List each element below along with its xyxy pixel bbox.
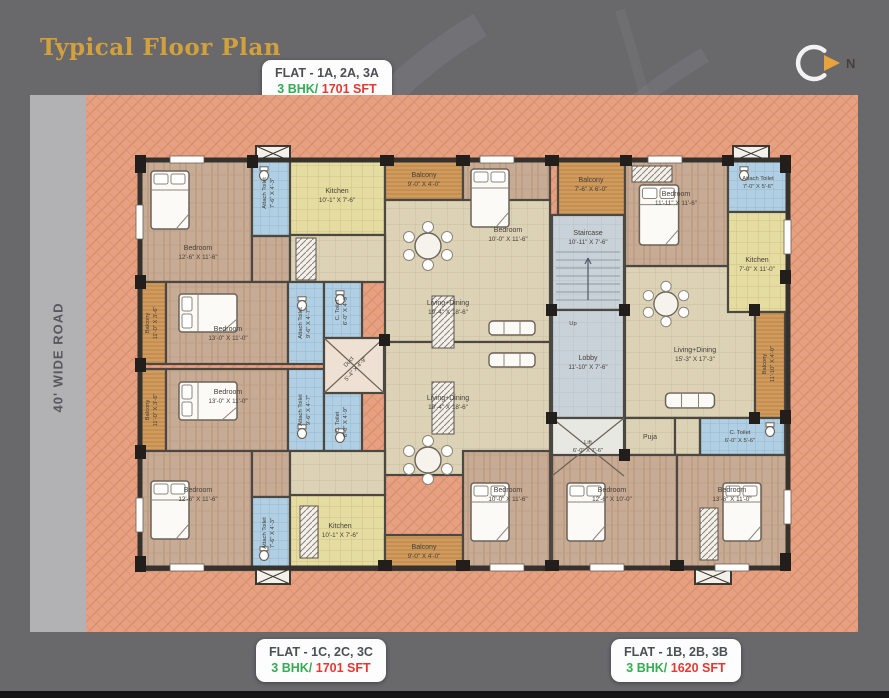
room-dims: 12'-6" X 11'-6": [178, 496, 217, 503]
room-label: Living+Dining: [427, 300, 469, 307]
room-dims: 10'-1" X 7'-6": [319, 197, 355, 204]
room-dims: 7'-6" X 4'-3": [270, 518, 276, 548]
room-label: Balcony: [145, 400, 151, 421]
rooms-layer: [140, 160, 788, 570]
room-label: Bedroom: [184, 245, 213, 252]
room-dims: 10'-0" X 11'-6": [488, 236, 527, 243]
room-dims: 12'-6" X 11'-6": [178, 254, 217, 261]
room-label: Kitchen: [745, 257, 768, 264]
room-dims: 6'-0" X 4'-9": [343, 407, 349, 437]
floor-plan: Bedroom 12'-6" X 11'-6" Attach Toilet 7'…: [86, 95, 858, 632]
room-label: Balcony: [412, 544, 437, 551]
room-label: Bedroom: [494, 487, 523, 494]
road-strip: 40' WIDE ROAD: [30, 95, 87, 632]
room-label: C. Toilet: [335, 299, 341, 320]
room-label: Kitchen: [325, 188, 348, 195]
room-dims: 9'-6" X 4'-7": [306, 395, 312, 425]
room-dims: 6'-0" X 5'-6": [725, 438, 755, 444]
room-dims: 7'-0" X 5'-6": [743, 184, 773, 190]
room-label: Bedroom: [214, 326, 243, 333]
room-label: Bedroom: [184, 487, 213, 494]
north-label: N: [846, 56, 855, 71]
room-dims: 13'-6" X 11'-0": [712, 496, 751, 503]
room-label: Bedroom: [718, 487, 747, 494]
room-label: Living+Dining: [427, 395, 469, 402]
room-label: Living+Dining: [674, 347, 716, 354]
room-dims: 10'-11" X 7'-6": [568, 239, 607, 246]
room-label: Kitchen: [328, 523, 351, 530]
north-indicator: N: [788, 38, 862, 92]
room-label: Staircase: [573, 230, 602, 237]
room-label: Bedroom: [662, 191, 691, 198]
sofa-icon: [489, 321, 535, 335]
flat-c-bhk: 3 BHK/: [271, 661, 312, 675]
room-dims: 19'-4" X 18'-6": [428, 404, 468, 411]
room-label: Balcony: [145, 313, 151, 334]
room-label: Bedroom: [214, 389, 243, 396]
room-dims: 7'-6" X 6'-0": [575, 186, 608, 193]
flat-b-title: FLAT - 1B, 2B, 3B: [624, 644, 728, 660]
room-dims: 10'-0" X 11'-6": [488, 496, 527, 503]
bed-icon: [151, 171, 189, 229]
room-dims: 19'-4" X 18'-6": [428, 309, 468, 316]
road-label: 40' WIDE ROAD: [51, 287, 66, 429]
room-label: Balcony: [762, 354, 768, 375]
room-dims: 7'-6" X 4'-3": [270, 178, 276, 208]
room-label: Attach Toilet: [298, 394, 304, 426]
toilet-wc-icon: [298, 425, 307, 439]
room-dims: 11'-0" X 3'-6": [153, 394, 159, 427]
room-label: Lobby: [578, 355, 598, 362]
room-dims: 13'-0" X 11'-0": [208, 335, 247, 342]
room-dims: 7'-0" X 11'-0": [739, 266, 775, 273]
room-dims: 15'-3" X 17'-3": [675, 356, 715, 363]
bottom-edge-bar: [0, 691, 889, 698]
flat-c-title: FLAT - 1C, 2C, 3C: [269, 644, 373, 660]
room-label: Balcony: [579, 177, 604, 184]
page-title: Typical Floor Plan: [40, 34, 281, 61]
room-label: Puja: [643, 434, 657, 441]
sofa-icon: [489, 353, 535, 367]
flat-badge-b: FLAT - 1B, 2B, 3B 3 BHK/ 1620 SFT: [611, 639, 741, 682]
room-dims: 9'-0" X 4'-0": [408, 553, 441, 560]
room-label: Attach Toilet: [262, 517, 268, 549]
room-dims: 6'-0" X 7'-6": [573, 448, 603, 454]
bed-icon: [471, 169, 509, 227]
room-label: Attach Toilet: [298, 307, 304, 339]
room-label: C. Toilet: [335, 411, 341, 432]
room-dims: 11'-10" X 7'-6": [568, 364, 607, 371]
floor-plan-svg: Bedroom 12'-6" X 11'-6" Attach Toilet 7'…: [86, 95, 858, 632]
flat-a-title: FLAT - 1A, 2A, 3A: [275, 65, 379, 81]
room-label: Lift: [584, 440, 592, 446]
room-label: Attach Toilet: [742, 176, 774, 182]
room-dims: 13'-0" X 11'-0": [208, 398, 247, 405]
room-label: Balcony: [412, 172, 437, 179]
room-dims: 10'-1" X 7'-6": [322, 532, 358, 539]
room-label: Bedroom: [494, 227, 523, 234]
room-dims: 11'-11" X 11'-6": [655, 200, 697, 207]
north-arrow-icon: [824, 55, 840, 71]
flat-c-area: 1701 SFT: [316, 661, 371, 675]
toilet-wc-icon: [766, 423, 775, 437]
up-label: Up: [569, 321, 576, 327]
room-dims: 6'-0" X 4'-9": [343, 295, 349, 325]
flat-b-bhk: 3 BHK/: [626, 661, 667, 675]
flat-badge-c: FLAT - 1C, 2C, 3C 3 BHK/ 1701 SFT: [256, 639, 386, 682]
room-dims: 11'-10" X 4'-0": [770, 346, 776, 382]
flat-b-area: 1620 SFT: [671, 661, 726, 675]
room-dims: 12'-6" X 10'-0": [592, 496, 632, 503]
room-label: C. Toilet: [730, 430, 751, 436]
room-label: Attach Toilet: [262, 177, 268, 209]
room-dims: 9'-0" X 4'-0": [408, 181, 441, 188]
room-label: Bedroom: [598, 487, 627, 494]
north-crescent-icon: [798, 47, 824, 79]
room-dims: 11'-0" X 3'-6": [153, 307, 159, 340]
room-dims: 9'-6" X 4'-7": [306, 308, 312, 338]
sofa-icon: [666, 393, 715, 408]
